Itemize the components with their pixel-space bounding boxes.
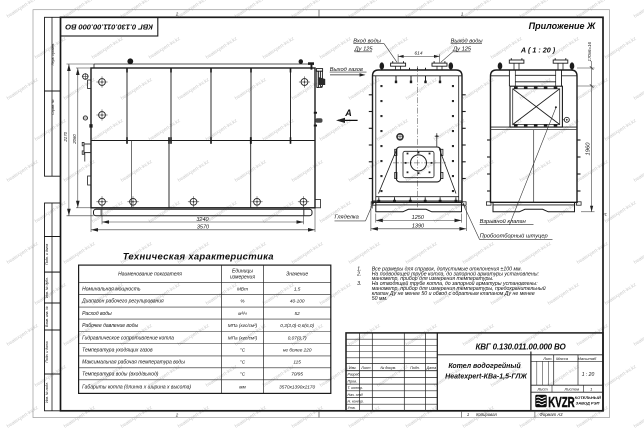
- svg-text:Инв. № дубл.: Инв. № дубл.: [45, 277, 49, 298]
- svg-text:Листов: Листов: [564, 387, 580, 392]
- svg-text:1: 1: [461, 11, 463, 16]
- svg-text:А: А: [344, 108, 352, 118]
- svg-text:Пров.: Пров.: [348, 379, 357, 383]
- svg-text:Гляделка: Гляделка: [335, 215, 359, 221]
- svg-text:1250: 1250: [412, 215, 425, 221]
- svg-text:Перв. примен.: Перв. примен.: [51, 43, 55, 66]
- svg-text:не более 220: не более 220: [283, 348, 312, 353]
- svg-text:Техническая характеристика: Техническая характеристика: [123, 251, 274, 262]
- svg-text:Лист: Лист: [360, 366, 370, 370]
- svg-text:Подп. и дата: Подп. и дата: [45, 341, 49, 362]
- svg-text:№ докум.: № докум.: [380, 366, 396, 370]
- svg-text:Инв. № подл.: Инв. № подл.: [45, 382, 49, 403]
- svg-text:70/95: 70/95: [291, 372, 303, 377]
- svg-text:Наименование показателя: Наименование показателя: [118, 272, 182, 278]
- svg-text:Лист: Лист: [536, 387, 548, 392]
- svg-text:1960: 1960: [585, 142, 591, 156]
- svg-text:Масштаб: Масштаб: [578, 356, 597, 361]
- svg-text:Температура уходящих газов: Температура уходящих газов: [82, 348, 153, 354]
- svg-text:1: 1: [590, 387, 592, 392]
- svg-text:МВт: МВт: [237, 286, 248, 291]
- svg-text:KVZR: KVZR: [548, 394, 575, 411]
- svg-text:Котел водогрейный: Котел водогрейный: [448, 362, 521, 370]
- svg-text:Нач. отд: Нач. отд: [348, 393, 363, 397]
- svg-text:Подп.: Подп.: [410, 366, 420, 370]
- svg-text:Значение: Значение: [286, 272, 308, 278]
- svg-text:Приложение Ж: Приложение Ж: [529, 21, 596, 31]
- svg-text:Т. контр.: Т. контр.: [348, 386, 364, 390]
- svg-text:Номинальная мощность: Номинальная мощность: [82, 286, 141, 292]
- svg-text:115: 115: [293, 360, 301, 365]
- svg-text:Копировал: Копировал: [476, 412, 497, 417]
- svg-text:Взрывной клапан: Взрывной клапан: [480, 218, 527, 225]
- svg-text:клапан Ду не менее 50 и обвод: клапан Ду не менее 50 и обвод с обратным…: [372, 291, 535, 297]
- svg-text:2170: 2170: [63, 131, 68, 142]
- svg-text:1: 1: [467, 412, 469, 417]
- svg-text:°С: °С: [240, 360, 246, 365]
- svg-text:°С: °С: [240, 348, 246, 353]
- svg-text:Габариты котла (длинна х ширин: Габариты котла (длинна х ширина х высота…: [82, 384, 191, 390]
- svg-text:Н. контр.: Н. контр.: [348, 400, 364, 404]
- svg-text:А: А: [603, 213, 608, 217]
- svg-text:1,5: 1,5: [294, 286, 301, 291]
- svg-text:Гидравлическое сопротивление к: Гидравлическое сопротивление котла: [82, 335, 174, 341]
- svg-text:50 мм.: 50 мм.: [372, 296, 388, 302]
- svg-text:3570х1390х2170: 3570х1390х2170: [279, 384, 315, 389]
- svg-text:МПа (кгс/см²): МПа (кгс/см²): [228, 323, 258, 328]
- svg-text:КОТЕЛЬНЫЙ: КОТЕЛЬНЫЙ: [575, 395, 601, 400]
- svg-text:2060: 2060: [72, 134, 77, 145]
- svg-text:52: 52: [295, 311, 301, 316]
- svg-text:Температура воды (вход/выход): Температура воды (вход/выход): [82, 372, 159, 378]
- svg-text:измерения: измерения: [230, 274, 255, 280]
- svg-text:Подп. и дата: Подп. и дата: [45, 244, 49, 265]
- svg-text:°С: °С: [240, 372, 246, 377]
- svg-text:0,3(3,0)-0,6(6,0): 0,3(3,0)-0,6(6,0): [280, 323, 314, 328]
- svg-text:Формат А3: Формат А3: [540, 412, 564, 417]
- svg-text:Дата: Дата: [426, 366, 436, 370]
- svg-text:Справ. №: Справ. №: [51, 99, 55, 115]
- svg-text:170х6=16: 170х6=16: [587, 42, 592, 62]
- svg-text:1390: 1390: [412, 224, 425, 230]
- svg-text:КВГ 0.130.011.00.000 ВО: КВГ 0.130.011.00.000 ВО: [65, 22, 153, 31]
- svg-text:м³/ч: м³/ч: [238, 311, 247, 316]
- svg-text:Масса: Масса: [556, 356, 569, 361]
- svg-text:Разраб.: Разраб.: [348, 373, 361, 377]
- svg-text:мм: мм: [239, 384, 246, 389]
- svg-text:Лит.: Лит.: [542, 356, 552, 361]
- svg-text:Пробоотборный штуцер: Пробоотборный штуцер: [480, 233, 548, 240]
- svg-text:КВГ 0.130.011.00.000 ВО: КВГ 0.130.011.00.000 ВО: [475, 343, 566, 352]
- svg-text:40-100: 40-100: [290, 299, 305, 304]
- svg-text:МПа (кгс/см²): МПа (кгс/см²): [228, 335, 258, 340]
- svg-text:Heatexpert-КВа-1,5-ГЛЖ: Heatexpert-КВа-1,5-ГЛЖ: [445, 374, 527, 381]
- svg-text:2.: 2.: [356, 271, 361, 277]
- svg-text:ЗАВОД РЭП: ЗАВОД РЭП: [576, 401, 600, 406]
- svg-text:%: %: [240, 299, 244, 304]
- svg-text:3240: 3240: [196, 217, 209, 223]
- svg-text:Изм.: Изм.: [349, 366, 357, 370]
- svg-text:Взам. инв. №: Взам. инв. №: [45, 306, 49, 327]
- svg-text:0,07(0,7): 0,07(0,7): [288, 335, 307, 340]
- svg-text:Максимальная рабочая температу: Максимальная рабочая температура воды: [82, 360, 185, 366]
- svg-text:614: 614: [414, 50, 422, 56]
- svg-text:3.: 3.: [357, 281, 361, 287]
- svg-text:Расход воды: Расход воды: [82, 311, 112, 317]
- svg-text:Диапазон рабочего регулировани: Диапазон рабочего регулирования: [81, 299, 164, 305]
- svg-text:Рабочее давление воды: Рабочее давление воды: [82, 323, 138, 329]
- svg-text:1 : 20: 1 : 20: [582, 372, 595, 378]
- svg-text:А ( 1 : 20 ): А ( 1 : 20 ): [520, 46, 556, 55]
- svg-text:Утв.: Утв.: [348, 406, 356, 410]
- svg-text:3570: 3570: [197, 225, 210, 231]
